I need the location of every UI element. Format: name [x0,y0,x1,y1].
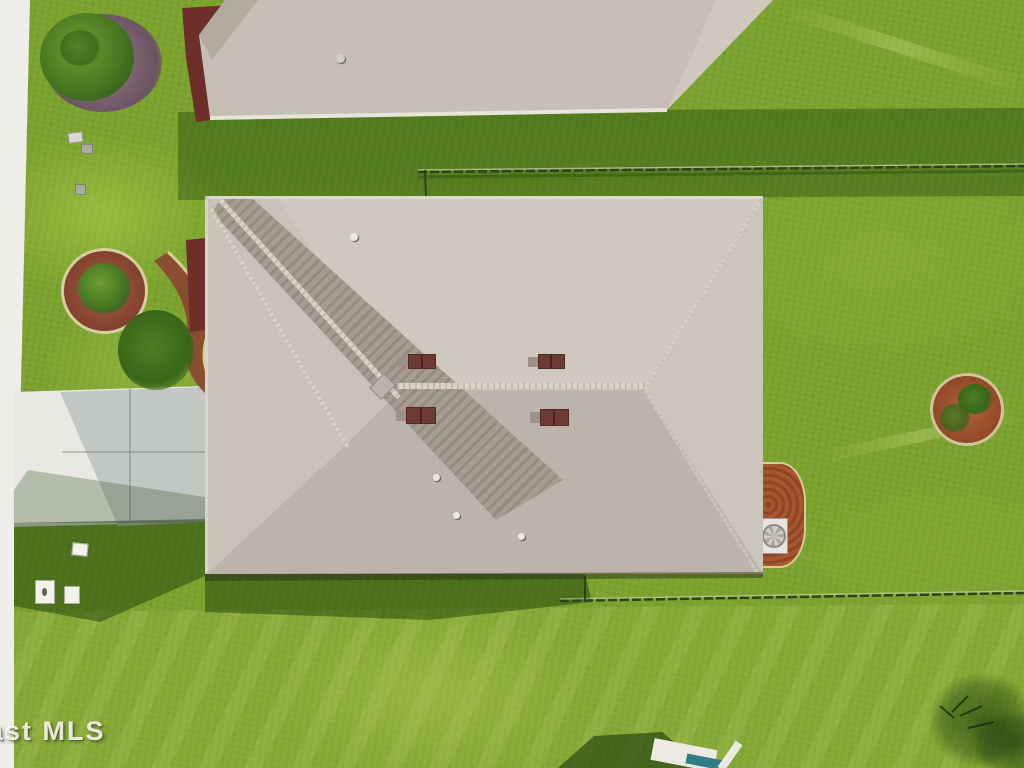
roof-vent [408,354,436,369]
mls-watermark: ast MLS [0,716,106,747]
utility-box-white [71,542,88,557]
main-ridge-cap [397,383,647,389]
garden-circle-left-plant [78,263,130,313]
roof-vent [538,354,565,369]
fence-post [425,170,426,196]
tree-shadow [960,700,1024,768]
vent-flashing [528,357,538,367]
vent-flashing [530,412,540,423]
ac-fan [762,524,786,548]
chain-link-fence-back [560,593,1024,601]
roof-pipe-vent [453,512,460,519]
roof-pipe-vent [433,474,440,481]
aerial-photo: ast MLS [0,0,1024,768]
roof-pipe-vent [350,233,358,241]
garden-circle-right-plant [940,404,970,432]
utility-box-white [64,586,80,604]
roof-vent [406,407,436,424]
vent-flashing [398,357,408,367]
roof-vent [540,409,569,426]
roof-pipe-vent [518,533,525,540]
front-bush [118,310,194,390]
utility-box-marking [42,588,47,596]
vent-flashing [396,410,406,421]
